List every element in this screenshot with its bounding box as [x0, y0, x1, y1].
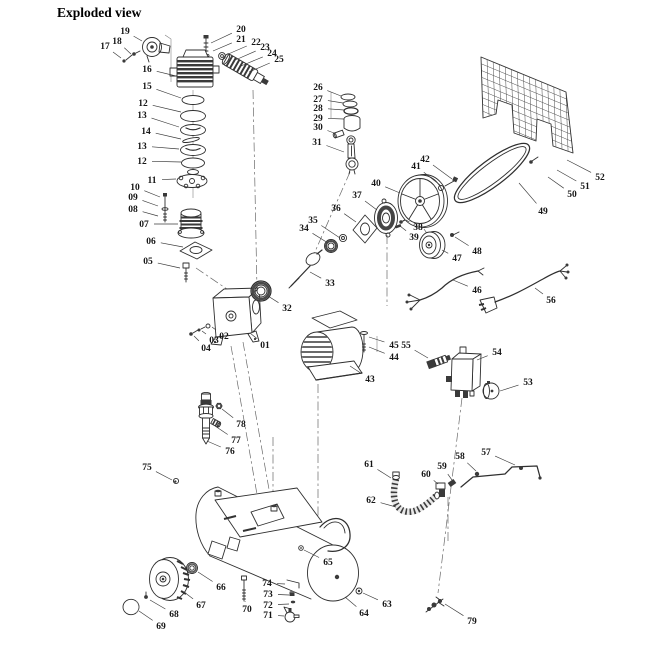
part-02-04-crankcase-bolts [189, 324, 210, 336]
leader-line-69 [139, 611, 153, 620]
leader-line-78 [222, 409, 233, 418]
part-35-nut [339, 234, 346, 241]
part-12-gasket [181, 111, 206, 122]
part-label-15: 15 [142, 82, 152, 92]
part-label-10: 10 [130, 183, 140, 193]
part-label-05: 05 [143, 257, 153, 267]
part-06-cylinder-gasket [180, 242, 212, 259]
leader-line-64 [345, 597, 356, 607]
leader-line-58 [467, 463, 476, 471]
leader-line-06 [161, 243, 183, 247]
part-57-60-discharge-pipe [436, 466, 542, 497]
part-43-motor [301, 311, 363, 380]
leader-line-24 [241, 57, 263, 66]
leader-line-79 [445, 604, 464, 616]
part-label-13: 13 [137, 142, 147, 152]
leader-line-23 [233, 51, 256, 61]
part-11-valve-plate-assembly [177, 175, 207, 188]
leader-line-05 [158, 263, 180, 268]
part-label-59: 59 [437, 462, 447, 472]
part-63-plug [356, 588, 362, 594]
leader-line-15 [156, 89, 181, 98]
part-07-cylinder [178, 209, 204, 238]
part-label-58: 58 [455, 452, 465, 462]
leader-line-63 [363, 593, 378, 600]
leader-line-75 [156, 472, 172, 480]
part-label-77: 77 [231, 436, 241, 446]
leader-line-09 [142, 200, 158, 206]
part-label-76: 76 [225, 447, 235, 457]
part-66-washer [187, 563, 198, 574]
part-32-bearing [251, 281, 271, 301]
leader-line-30 [327, 131, 334, 134]
part-36-flange-gasket [353, 215, 377, 243]
part-label-20: 20 [236, 25, 246, 35]
leader-line-73 [278, 595, 289, 596]
part-17-18-screws [122, 51, 140, 63]
part-label-79: 79 [467, 617, 477, 627]
part-22-nut [219, 53, 226, 60]
part-label-11: 11 [148, 176, 157, 186]
leader-line-66 [198, 572, 213, 582]
part-label-71: 71 [263, 611, 273, 621]
leader-line-32 [268, 296, 279, 303]
part-56-power-cord [479, 264, 570, 314]
part-label-57: 57 [481, 448, 491, 458]
leader-line-28 [328, 109, 344, 110]
leader-line-29 [328, 118, 344, 119]
part-label-35: 35 [308, 216, 318, 226]
part-label-65: 65 [323, 558, 333, 568]
part-69-hub-cap [123, 599, 139, 614]
leader-line-76 [207, 441, 221, 447]
leader-line-40 [385, 187, 400, 193]
part-label-45: 45 [389, 341, 399, 351]
part-31-connecting-rod [346, 136, 358, 174]
leader-line-33 [310, 272, 321, 278]
part-05-bolt [183, 263, 189, 282]
part-label-26: 26 [313, 83, 323, 93]
leader-line-11 [162, 179, 176, 180]
part-67-wheel [150, 558, 191, 601]
part-label-33: 33 [325, 279, 335, 289]
part-label-66: 66 [216, 583, 226, 593]
part-68-axle-nut [144, 592, 148, 599]
part-70-bolt [242, 576, 247, 601]
leader-line-31 [326, 146, 344, 153]
part-label-07: 07 [139, 220, 149, 230]
part-label-55: 55 [401, 341, 411, 351]
leader-line-55 [415, 350, 428, 358]
part-label-28: 28 [313, 104, 323, 114]
part-76-78-safety-valve [199, 392, 223, 444]
leader-line-48 [455, 237, 469, 246]
part-label-31: 31 [312, 138, 322, 148]
leader-line-57 [495, 456, 515, 465]
part-label-73: 73 [263, 590, 273, 600]
part-label-62: 62 [366, 496, 376, 506]
leader-line-14 [156, 133, 181, 139]
part-48-pulley-bolt [450, 232, 459, 237]
part-34-bearing [325, 240, 338, 253]
leader-line-13 [152, 147, 179, 149]
part-label-09: 09 [128, 193, 138, 203]
part-50-52-belt-guard [481, 57, 575, 164]
part-53-pressure-gauge [483, 381, 499, 399]
part-47-motor-pulley [420, 232, 446, 259]
part-label-08: 08 [128, 205, 138, 215]
part-label-78: 78 [236, 420, 246, 430]
part-label-70: 70 [242, 605, 252, 615]
part-30-wrist-pin [333, 130, 344, 138]
part-33-crankshaft [289, 250, 322, 288]
part-label-44: 44 [389, 353, 399, 363]
leader-line-72 [278, 604, 289, 605]
exploded-view-page: Exploded view [0, 0, 661, 661]
leader-line-12 [152, 161, 181, 162]
part-label-53: 53 [523, 378, 533, 388]
leader-line-03 [202, 331, 206, 334]
part-19-breather-housing [143, 38, 171, 63]
leader-line-18 [124, 48, 131, 54]
leader-line-36 [344, 214, 356, 222]
leader-line-67 [184, 592, 193, 599]
part-label-40: 40 [371, 179, 381, 189]
leader-line-13 [152, 118, 180, 127]
part-label-37: 37 [352, 191, 362, 201]
part-75-plug [173, 478, 178, 483]
leader-line-27 [328, 101, 343, 103]
part-label-43: 43 [365, 375, 375, 385]
part-61-62-braided-hose [393, 472, 440, 512]
leader-line-51 [557, 170, 576, 181]
part-label-49: 49 [538, 207, 548, 217]
leader-line-59 [448, 474, 452, 480]
leader-line-19 [134, 36, 142, 41]
part-12-gasket-2 [182, 158, 205, 175]
leader-line-53 [500, 385, 519, 391]
part-label-02: 02 [219, 332, 229, 342]
part-label-12: 12 [137, 157, 147, 167]
leader-line-49 [519, 183, 537, 203]
part-label-04: 04 [201, 344, 211, 354]
part-label-14: 14 [141, 127, 151, 137]
part-label-42: 42 [420, 155, 430, 165]
leader-line-12 [153, 105, 181, 112]
part-label-64: 64 [359, 609, 369, 619]
leader-line-17 [113, 52, 121, 58]
part-16-cylinder-head [170, 50, 219, 87]
part-label-13: 13 [137, 111, 147, 121]
part-label-61: 61 [364, 460, 374, 470]
part-40-flywheel [398, 175, 448, 228]
part-label-12: 12 [138, 99, 148, 109]
part-label-06: 06 [146, 237, 156, 247]
part-label-39: 39 [409, 233, 419, 243]
part-29-piston [344, 116, 360, 132]
leader-line-39 [400, 226, 406, 231]
leader-line-08 [143, 212, 158, 216]
part-label-51: 51 [580, 182, 590, 192]
exploded-view-diagram: 0102030405060708091011121314131215161718… [0, 0, 661, 661]
leader-line-21 [213, 43, 232, 51]
part-37-bearing-cover [375, 199, 398, 237]
part-label-60: 60 [421, 470, 431, 480]
part-label-54: 54 [492, 348, 502, 358]
leader-line-22 [226, 46, 247, 55]
part-14-valve-reed [182, 136, 199, 143]
part-55-check-valve-fitting [426, 353, 451, 369]
part-label-21: 21 [236, 35, 246, 45]
leader-line-10 [144, 191, 160, 197]
leader-line-56 [535, 288, 543, 294]
part-label-67: 67 [196, 601, 206, 611]
part-08-10-stud-washer [162, 193, 168, 222]
part-label-56: 56 [546, 296, 556, 306]
leader-line-68 [150, 600, 165, 609]
part-13-valve-plate-2 [181, 145, 206, 156]
leader-line-34 [313, 233, 329, 243]
part-71-74-drain-valve [284, 580, 299, 622]
part-label-72: 72 [263, 601, 273, 611]
part-label-48: 48 [472, 247, 482, 257]
part-49-v-belt [447, 135, 536, 211]
part-label-30: 30 [313, 123, 323, 133]
leader-line-26 [327, 91, 341, 96]
part-23-25-air-filter [221, 53, 271, 89]
part-label-38: 38 [413, 223, 423, 233]
part-label-18: 18 [112, 37, 122, 47]
leader-line-77 [215, 426, 228, 435]
part-label-36: 36 [331, 204, 341, 214]
part-label-32: 32 [282, 304, 292, 314]
leader-line-42 [433, 165, 452, 179]
part-54-pressure-switch [446, 347, 481, 398]
part-15-head-gasket [182, 96, 204, 105]
part-26-28-piston-rings [341, 94, 358, 114]
leader-line-04 [194, 336, 199, 341]
part-13-valve-plate [181, 125, 206, 136]
part-label-74: 74 [262, 579, 272, 589]
part-label-63: 63 [382, 600, 392, 610]
leader-line-50 [548, 177, 564, 188]
part-label-25: 25 [274, 55, 284, 65]
part-label-52: 52 [595, 173, 605, 183]
part-label-50: 50 [567, 190, 577, 200]
part-79-fitting [426, 597, 444, 612]
leader-line-37 [365, 201, 377, 210]
part-label-17: 17 [100, 42, 110, 52]
leader-line-20 [211, 33, 232, 43]
part-label-47: 47 [452, 254, 462, 264]
leader-line-61 [377, 469, 391, 478]
part-label-19: 19 [120, 27, 130, 37]
part-label-75: 75 [142, 463, 152, 473]
part-label-69: 69 [156, 622, 166, 632]
part-label-46: 46 [472, 286, 482, 296]
part-label-16: 16 [142, 65, 152, 75]
part-label-01: 01 [260, 341, 270, 351]
leader-line-46 [453, 280, 468, 286]
leader-line-52 [567, 160, 591, 172]
part-label-68: 68 [169, 610, 179, 620]
